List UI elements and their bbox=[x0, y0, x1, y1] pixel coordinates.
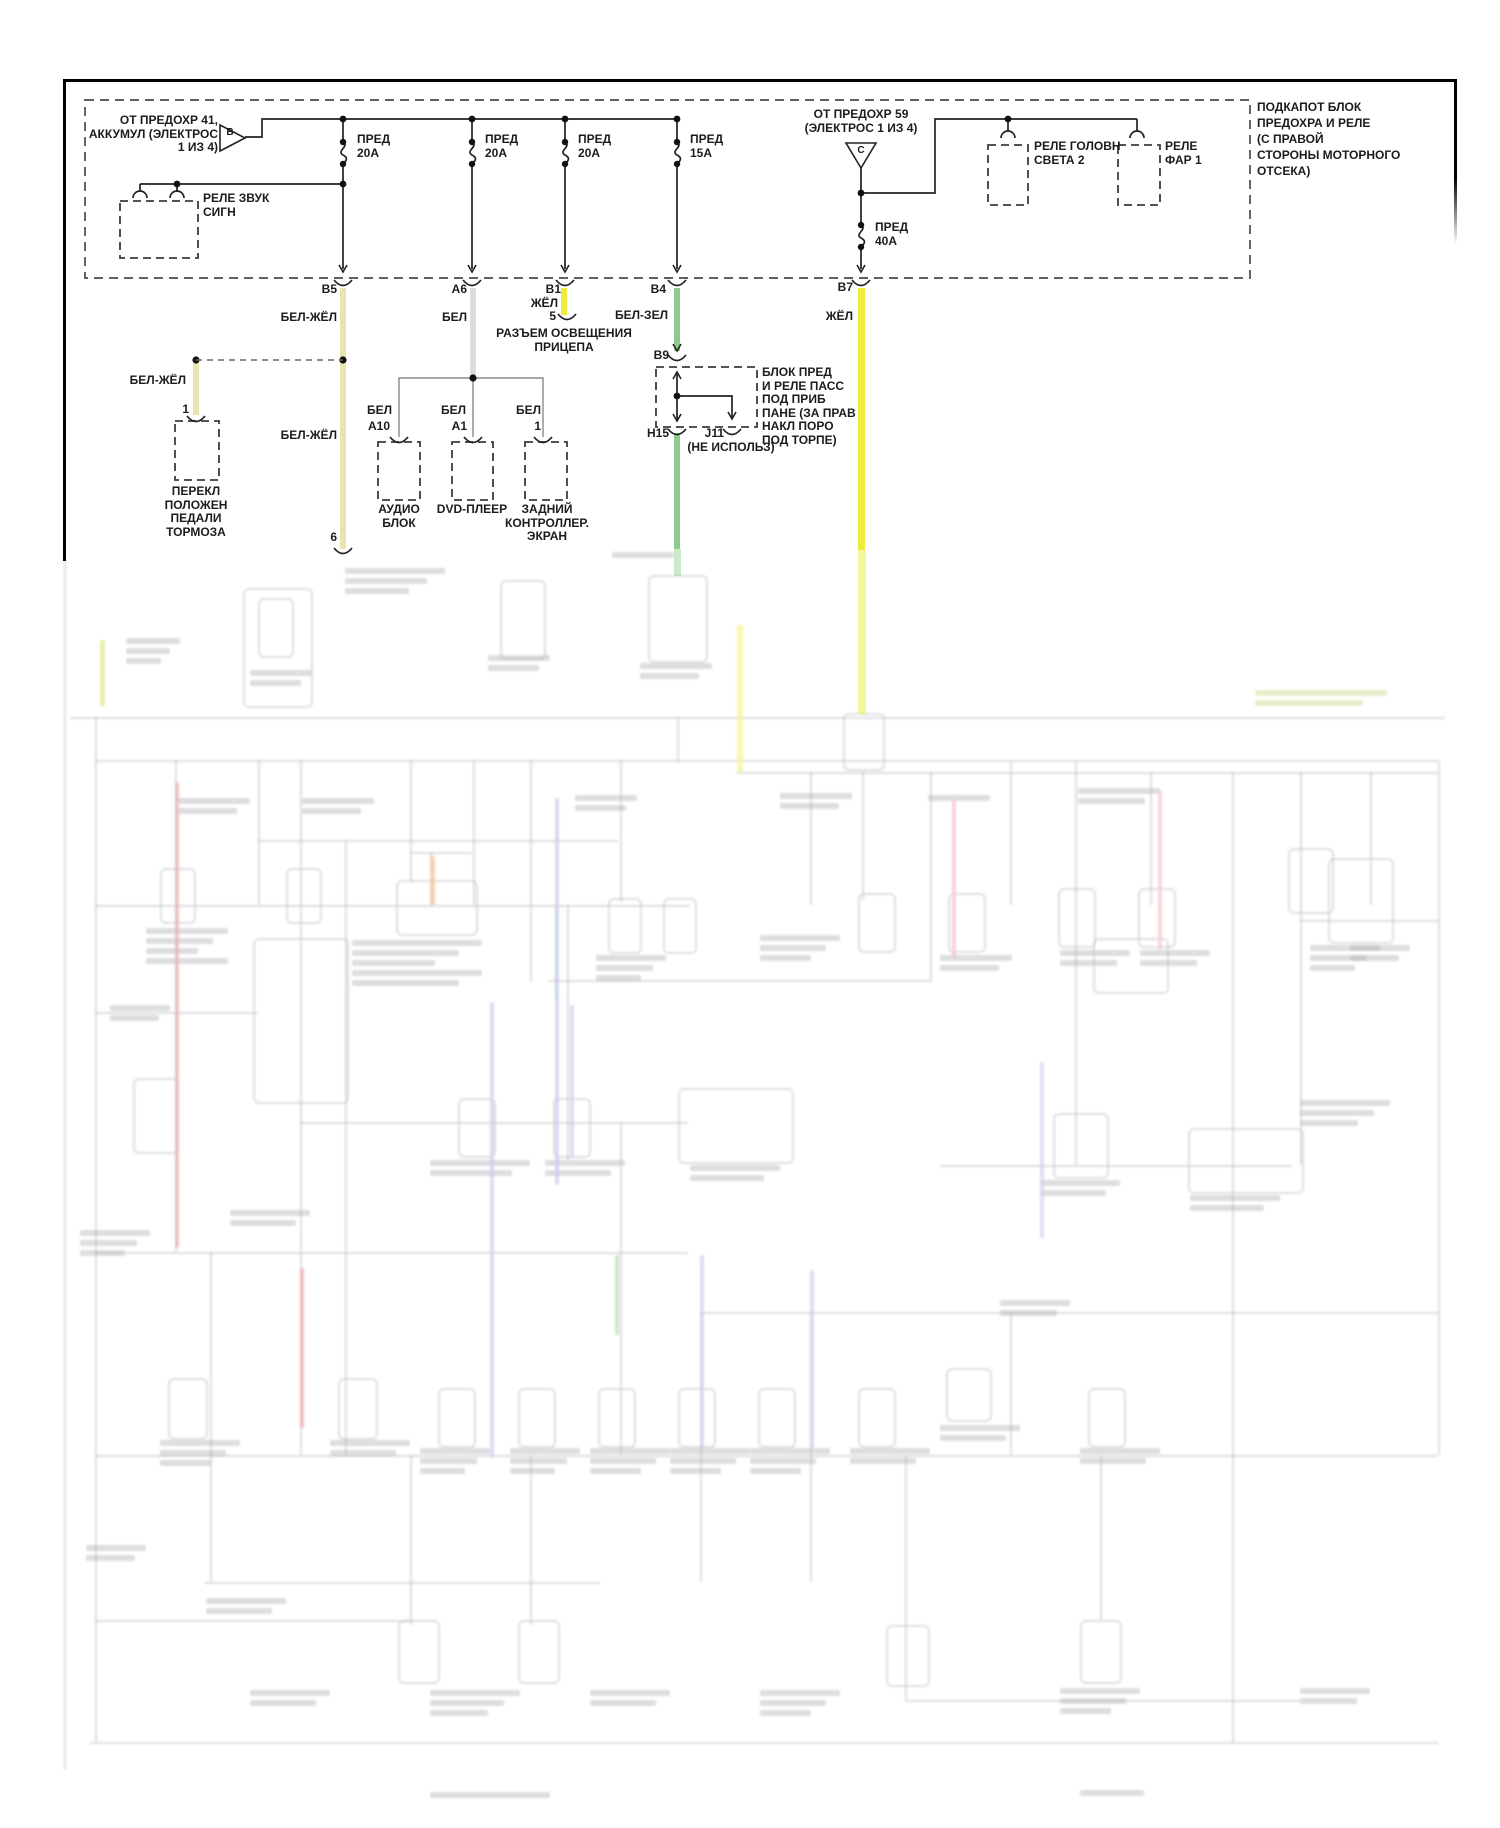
fuse-15a-label: ПРЕД 15А bbox=[690, 133, 750, 160]
pin-5-label: 5 bbox=[516, 310, 556, 324]
audio-unit-box bbox=[378, 442, 420, 500]
pin-a10-label: A10 bbox=[350, 420, 390, 434]
power-bus-lines bbox=[140, 119, 1137, 421]
pin-1-rear-label: 1 bbox=[501, 420, 541, 434]
from-fuse-41-label: ОТ ПРЕДОХР 41, АККУМУЛ (ЭЛЕКТРОС 1 ИЗ 4) bbox=[78, 114, 218, 155]
fuse-40a-label: ПРЕД 40А bbox=[875, 221, 935, 248]
pedal-switch-box bbox=[175, 421, 219, 480]
underhood-block-outline bbox=[85, 100, 1250, 278]
wire-color-a1-label: БЕЛ bbox=[426, 404, 466, 418]
headlight-relay-2-label: РЕЛЕ ГОЛОВН СВЕТА 2 bbox=[1034, 140, 1144, 167]
wire-color-b4-label: БЕЛ-ЗЕЛ bbox=[568, 309, 668, 323]
pin-a1-label: A1 bbox=[427, 420, 467, 434]
wire-color-pedal-label: БЕЛ-ЖЁЛ bbox=[86, 374, 186, 388]
pin-a6-label: A6 bbox=[427, 283, 467, 297]
pin-6-label: 6 bbox=[297, 531, 337, 545]
wire-color-b7-label: ЖЁЛ bbox=[773, 310, 853, 324]
horn-relay-box bbox=[120, 201, 198, 258]
pin-b1-label: B1 bbox=[521, 283, 561, 297]
pin-b9-label: B9 bbox=[629, 349, 669, 363]
fuse-20a-1-label: ПРЕД 20А bbox=[357, 133, 417, 160]
rear-controller-label: ЗАДНИЙ КОНТРОЛЛЕР. ЭКРАН bbox=[497, 503, 597, 544]
rear-controller-box bbox=[525, 442, 567, 500]
underhood-block-label: ПОДКАПОТ БЛОК ПРЕДОХРА И РЕЛЕ (С ПРАВОЙ … bbox=[1257, 99, 1432, 179]
wire-color-b1-label: ЖЁЛ bbox=[478, 297, 558, 311]
passenger-fuse-block-label: БЛОК ПРЕД И РЕЛЕ ПАСС ПОД ПРИБ ПАНЕ (ЗА … bbox=[762, 366, 872, 447]
headlight-relay-2-box bbox=[988, 145, 1028, 205]
pin-h15-label: H15 bbox=[629, 427, 669, 441]
trailer-connector-label: РАЗЪЕМ ОСВЕЩЕНИЯ ПРИЦЕПА bbox=[484, 327, 644, 354]
horn-relay-label: РЕЛЕ ЗВУК СИГН bbox=[203, 192, 293, 219]
not-used-label: (НЕ ИСПОЛЬЗ) bbox=[671, 441, 791, 455]
triangle-b-letter: B bbox=[222, 126, 238, 140]
pin-b5-label: B5 bbox=[297, 283, 337, 297]
pin-1-pedal-label: 1 bbox=[149, 403, 189, 417]
passenger-fuse-block-box bbox=[656, 367, 757, 427]
triangle-c-letter: C bbox=[853, 144, 869, 158]
schematic-linework bbox=[0, 0, 1500, 1828]
dvd-player-box bbox=[452, 442, 493, 500]
wire-color-b5-label: БЕЛ-ЖЁЛ bbox=[237, 311, 337, 325]
from-fuse-59-label: ОТ ПРЕДОХР 59 (ЭЛЕКТРОС 1 ИЗ 4) bbox=[781, 108, 941, 135]
wire-color-a10-label: БЕЛ bbox=[352, 404, 392, 418]
wiring-diagram-page: ОТ ПРЕДОХР 41, АККУМУЛ (ЭЛЕКТРОС 1 ИЗ 4)… bbox=[0, 0, 1500, 1828]
pin-b4-label: B4 bbox=[626, 283, 666, 297]
pin-b7-label: B7 bbox=[813, 281, 853, 295]
fuse-20a-3-label: ПРЕД 20А bbox=[578, 133, 638, 160]
wire-color-b5-lower-label: БЕЛ-ЖЁЛ bbox=[237, 429, 337, 443]
pin-j11-label: J11 bbox=[684, 427, 724, 441]
pedal-switch-label: ПЕРЕКЛ ПОЛОЖЕН ПЕДАЛИ ТОРМОЗА bbox=[141, 485, 251, 539]
wire-color-rear-label: БЕЛ bbox=[501, 404, 541, 418]
wire-color-a6-label: БЕЛ bbox=[387, 311, 467, 325]
headlamp-relay-1-label: РЕЛЕ ФАР 1 bbox=[1165, 140, 1235, 167]
fuse-20a-2-label: ПРЕД 20А bbox=[485, 133, 545, 160]
